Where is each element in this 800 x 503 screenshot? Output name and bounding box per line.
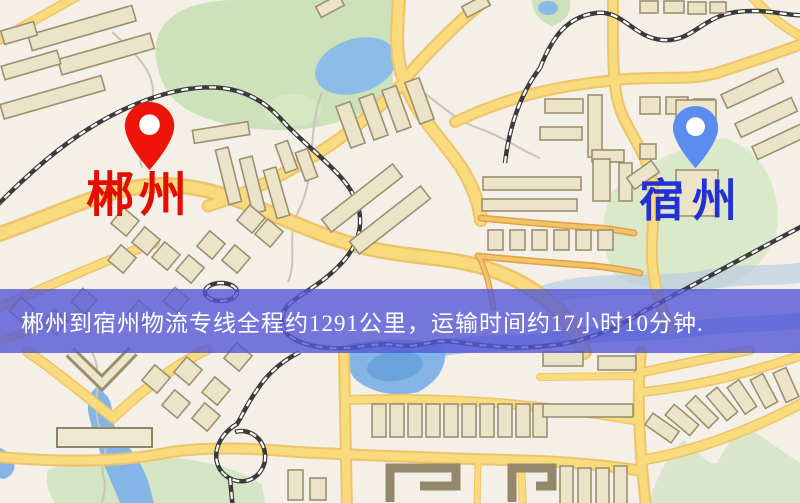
map-pin-icon <box>123 101 176 171</box>
destination-city-label: 宿州 <box>639 179 745 224</box>
map-view[interactable]: 郴州 宿州 郴州到宿州物流专线全程约1291公里，运输时间约17小时10分钟. <box>0 0 800 503</box>
destination-pin[interactable] <box>671 105 720 169</box>
route-info-banner: 郴州到宿州物流专线全程约1291公里，运输时间约17小时10分钟. <box>0 289 800 353</box>
map-artwork <box>0 0 800 503</box>
map-pin-icon <box>671 105 720 169</box>
origin-city-label: 郴州 <box>86 172 192 220</box>
origin-pin[interactable] <box>123 101 176 171</box>
route-info-text: 郴州到宿州物流专线全程约1291公里，运输时间约17小时10分钟. <box>21 304 704 338</box>
